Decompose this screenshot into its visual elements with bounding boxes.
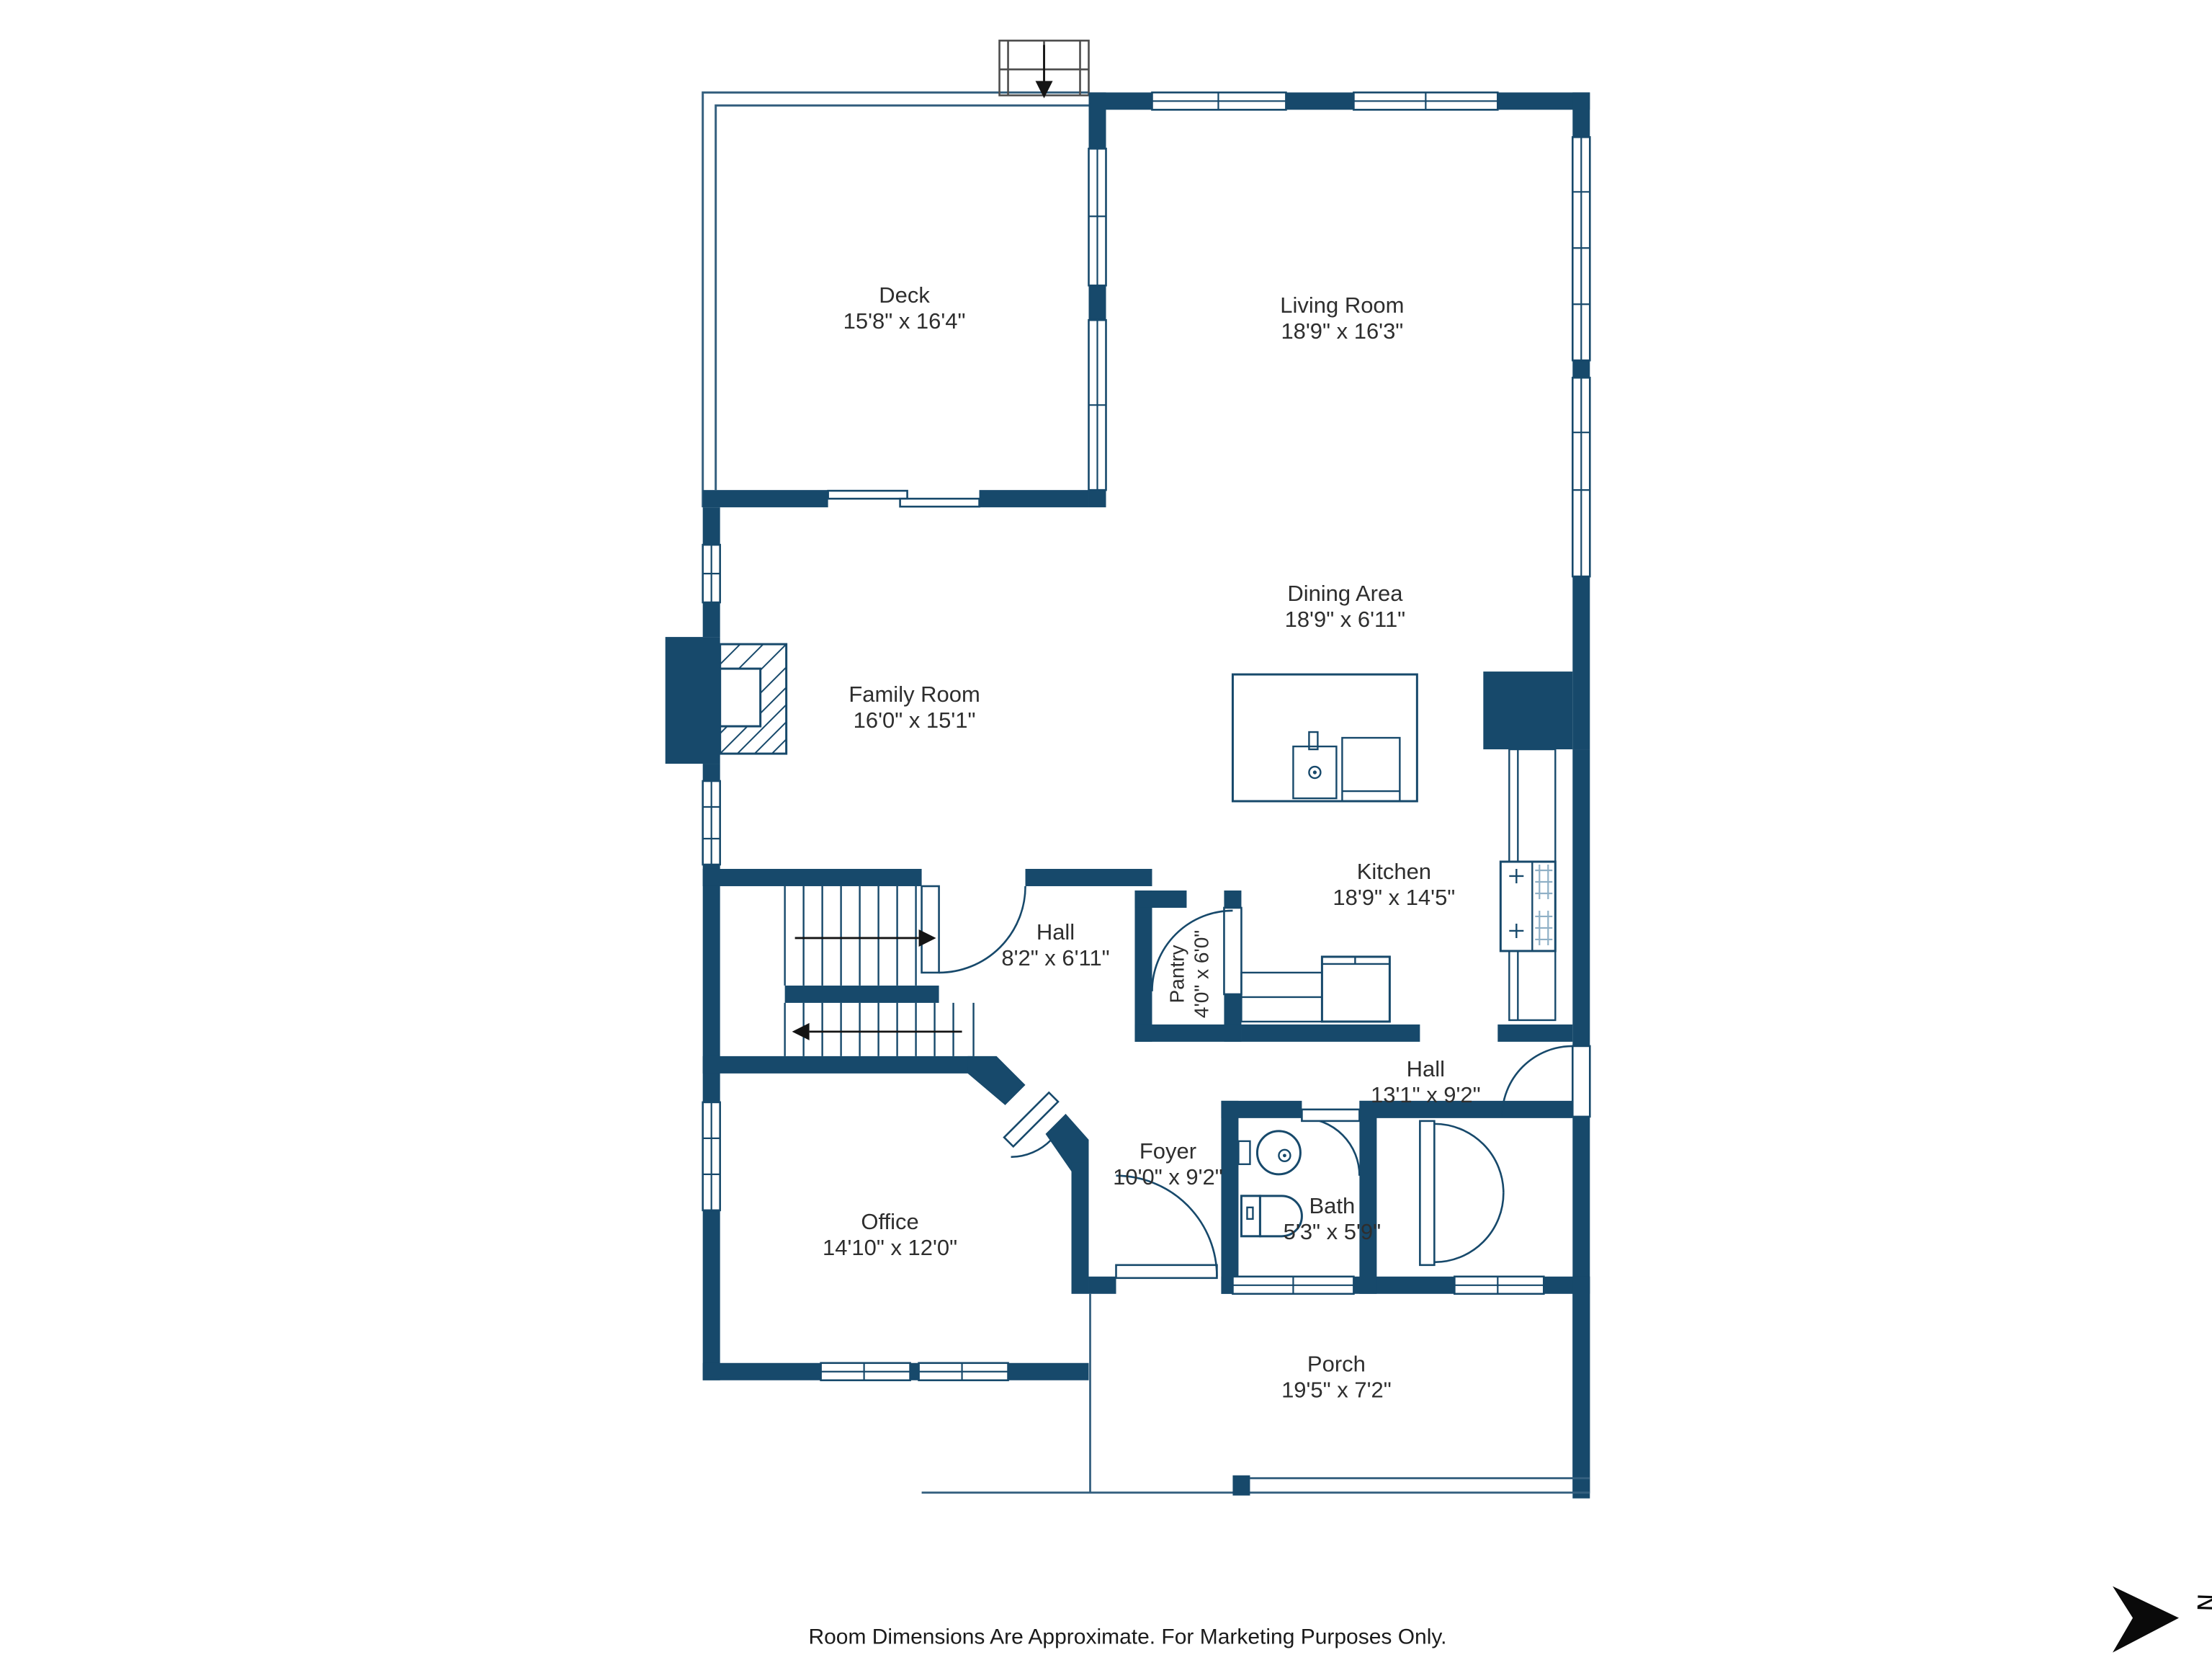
room-dims-pantry: 4'0" x 6'0" xyxy=(1190,930,1212,1018)
kitchen-chimney-block xyxy=(1483,671,1572,749)
window xyxy=(821,1363,910,1380)
window xyxy=(703,1102,720,1210)
north-arrow-icon: N xyxy=(2113,1587,2212,1653)
window xyxy=(919,1363,1008,1380)
room-label-hall-lower: Hall xyxy=(1407,1056,1445,1081)
bath-sink xyxy=(1238,1131,1300,1174)
window xyxy=(703,545,720,602)
fireplace xyxy=(720,644,787,754)
room-label-family-room: Family Room xyxy=(848,682,980,707)
room-label-hall-upper: Hall xyxy=(1036,919,1075,945)
room-label-dining-area: Dining Area xyxy=(1287,581,1403,606)
room-dims-hall-upper: 8'2" x 6'11" xyxy=(1001,945,1109,970)
room-dims-bath: 5'3" x 5'9" xyxy=(1284,1219,1381,1244)
window xyxy=(1232,1277,1353,1294)
deck-stairs xyxy=(1000,40,1089,98)
room-dims-dining-area: 18'9" x 6'11" xyxy=(1285,607,1406,632)
bath-door xyxy=(1302,1110,1359,1176)
room-label-deck: Deck xyxy=(879,282,930,308)
closet-double-doors xyxy=(1420,1121,1503,1265)
front-entry-door xyxy=(1116,1176,1217,1278)
disclaimer-text: Room Dimensions Are Approximate. For Mar… xyxy=(808,1625,1446,1649)
kitchen-counter-south xyxy=(1241,973,1322,1022)
exterior-walls xyxy=(666,92,1590,1498)
window xyxy=(1089,148,1106,285)
kitchen-stove xyxy=(1500,862,1555,951)
room-dims-deck: 15'8" x 16'4" xyxy=(843,308,966,334)
window xyxy=(1152,92,1286,110)
room-dims-foyer: 10'0" x 9'2" xyxy=(1113,1164,1223,1190)
floorplan-svg: Deck 15'8" x 16'4" Living Room 18'9" x 1… xyxy=(0,0,2212,1660)
porch-edges xyxy=(922,1294,1590,1496)
compass-north-label: N xyxy=(2191,1593,2212,1612)
room-label-bath: Bath xyxy=(1309,1193,1356,1218)
room-labels: Deck 15'8" x 16'4" Living Room 18'9" x 1… xyxy=(823,282,1481,1403)
room-label-porch: Porch xyxy=(1307,1352,1366,1377)
room-label-pantry: Pantry xyxy=(1165,945,1188,1003)
room-dims-hall-lower: 13'1" x 9'2" xyxy=(1371,1082,1481,1107)
window xyxy=(1572,378,1590,576)
office-door xyxy=(1004,1092,1058,1156)
room-dims-kitchen: 18'9" x 14'5" xyxy=(1333,885,1455,910)
window xyxy=(1353,92,1497,110)
kitchen-island xyxy=(1232,674,1417,801)
deck-sliding-door xyxy=(828,491,980,507)
floorplan-page: Deck 15'8" x 16'4" Living Room 18'9" x 1… xyxy=(0,0,2212,1660)
fireplace-bump xyxy=(666,637,720,764)
room-label-office: Office xyxy=(861,1209,918,1234)
window xyxy=(1454,1277,1544,1294)
room-label-living-room: Living Room xyxy=(1280,293,1404,318)
room-label-foyer: Foyer xyxy=(1139,1138,1196,1164)
room-dims-office: 14'10" x 12'0" xyxy=(823,1235,957,1260)
room-label-kitchen: Kitchen xyxy=(1357,859,1431,884)
window xyxy=(703,781,720,865)
room-dims-porch: 19'5" x 7'2" xyxy=(1281,1378,1392,1403)
kitchen-fridge xyxy=(1322,957,1389,1022)
window xyxy=(1089,320,1106,490)
room-dims-family-room: 16'0" x 15'1" xyxy=(854,708,976,733)
window xyxy=(1572,137,1590,360)
room-dims-living-room: 18'9" x 16'3" xyxy=(1281,318,1403,344)
interior-stairs xyxy=(785,886,974,1056)
